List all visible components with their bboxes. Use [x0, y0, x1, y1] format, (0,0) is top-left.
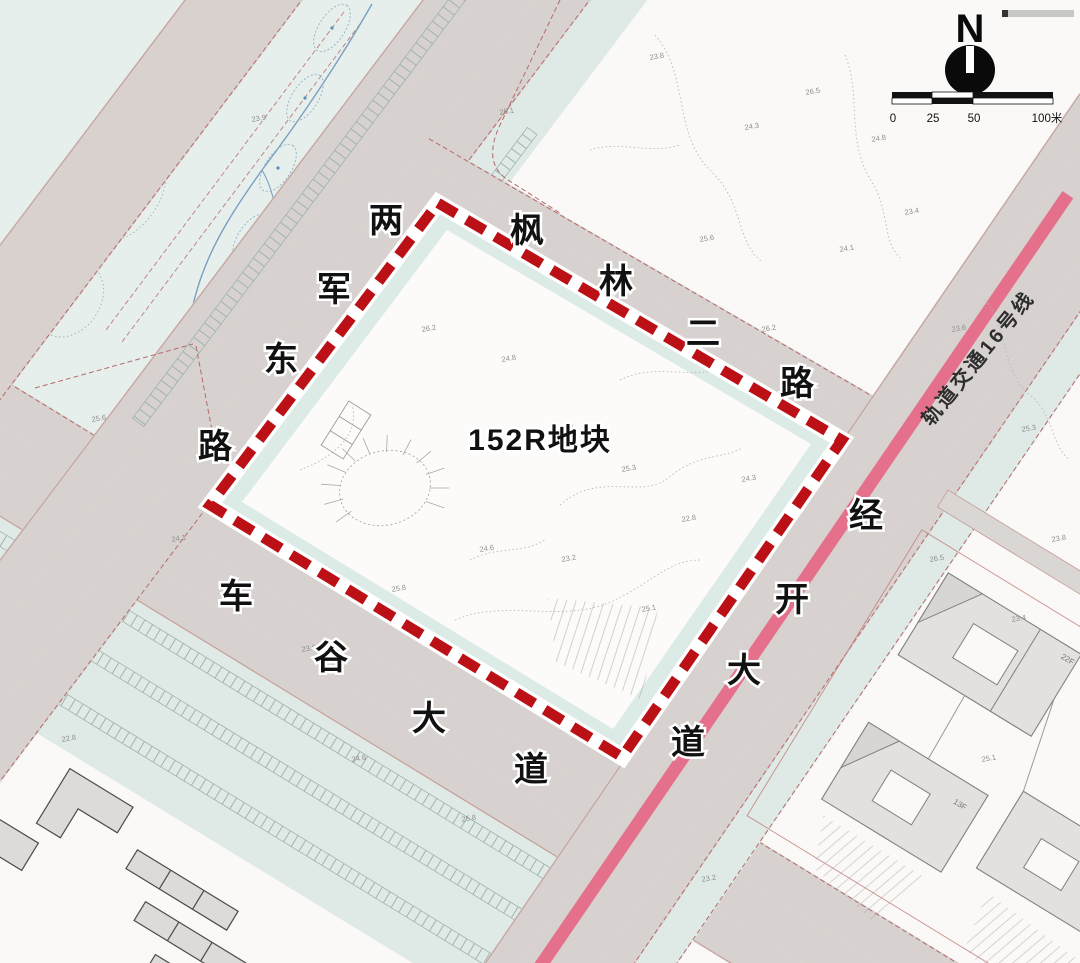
road-label-char: 大 [727, 652, 761, 690]
road-label-char: 开 [775, 581, 809, 619]
road-label-char: 经 [849, 497, 883, 535]
map-canvas: 22F 13F 25.123.824.326.523.424.125.623.9… [0, 0, 1080, 963]
planning-map: 22F 13F 25.123.824.326.523.424.125.623.9… [0, 0, 1080, 963]
road-label-char: 谷 [314, 639, 348, 677]
scale-tick: 50 [968, 113, 981, 125]
road-label-char: 道 [514, 751, 548, 789]
road-label-char: 车 [219, 578, 253, 616]
road-label-char: 枫 [510, 212, 544, 250]
road-label-char: 林 [599, 263, 633, 301]
north-arrow-notch [966, 46, 974, 73]
north-label: N [956, 7, 985, 51]
road-label-char: 东 [264, 340, 298, 379]
road-label-char: 大 [412, 700, 446, 738]
scale-tick: 100米 [1032, 112, 1063, 125]
scale-tick: 0 [890, 113, 896, 125]
road-label-char: 二 [686, 315, 720, 353]
road-label-char: 两 [369, 202, 403, 240]
road-label-char: 路 [198, 428, 233, 466]
road-label-char: 军 [317, 271, 351, 309]
scale-tick: 25 [927, 113, 940, 125]
road-label-char: 道 [671, 724, 705, 762]
corner-annotation-illegible [1002, 10, 1074, 17]
road-label-char: 路 [780, 365, 815, 403]
parcel-label: 152R地块 [468, 424, 612, 457]
